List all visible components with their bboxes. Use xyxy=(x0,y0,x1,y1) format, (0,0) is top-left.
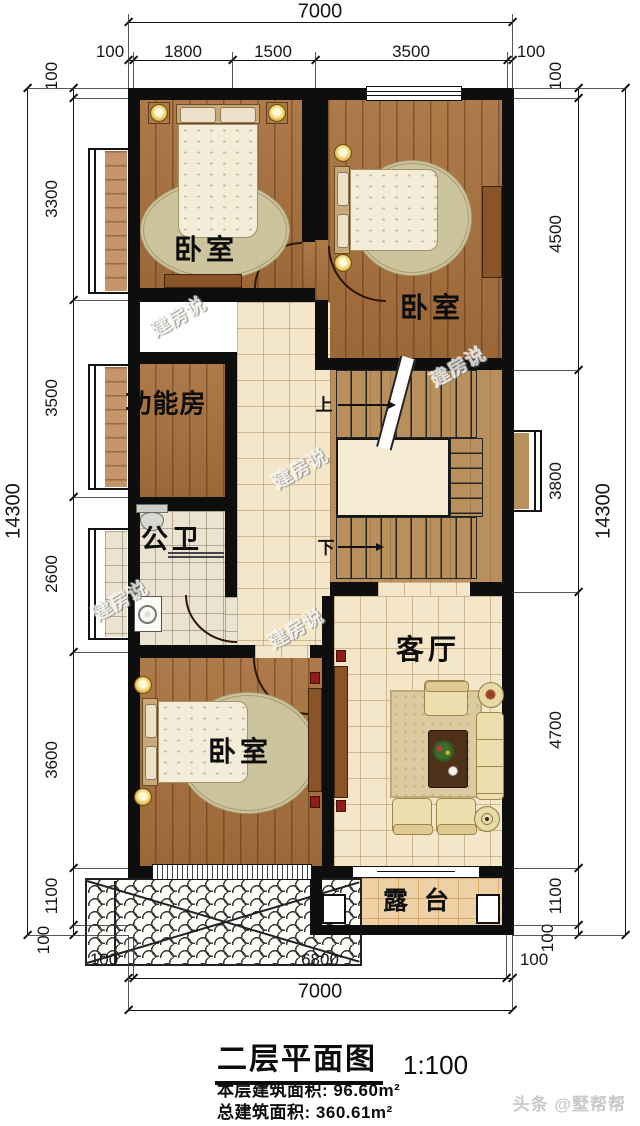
wall-living-left xyxy=(322,596,334,868)
bay-window xyxy=(510,430,542,512)
stair-well xyxy=(336,438,450,517)
dim-line xyxy=(128,978,512,979)
room-label-terrace: 露台 xyxy=(383,881,465,917)
armchair xyxy=(436,798,476,834)
window-glass-line xyxy=(94,150,96,292)
dim-left-seg: 3600 xyxy=(42,741,62,779)
window-top xyxy=(366,86,462,101)
room-label-bedroom-tr: 卧室 xyxy=(400,286,464,326)
dim-top-seg: 3500 xyxy=(392,42,430,62)
extension-line xyxy=(73,300,128,301)
total-area-line: 总建筑面积: 360.61m² xyxy=(217,1098,393,1123)
window-glass-line xyxy=(94,530,96,638)
dim-left-seg: 100 xyxy=(42,62,62,90)
lamp xyxy=(268,104,286,122)
stair-up-arrow-line xyxy=(338,404,390,406)
dim-left-total: 14300 xyxy=(3,483,26,539)
tv-console-bedroom xyxy=(308,688,322,792)
dim-line xyxy=(128,60,512,61)
terrace-pier xyxy=(322,894,346,924)
extension-line xyxy=(128,935,129,1010)
dim-right-seg: 100 xyxy=(538,924,558,952)
extension-line xyxy=(512,925,578,926)
dresser xyxy=(164,274,242,288)
wall-living-top-left xyxy=(330,582,378,596)
dim-line xyxy=(128,22,512,23)
footer-watermark: 头条 @墅帮帮 xyxy=(513,1090,626,1115)
extension-line xyxy=(512,370,578,371)
drawing-scale: 1:100 xyxy=(403,1050,468,1085)
dim-right-total: 14300 xyxy=(593,483,616,539)
bed-pillow xyxy=(220,107,256,123)
wall-bedroom-tl-bottom xyxy=(128,288,315,302)
stair-down-label: 下 xyxy=(318,534,335,559)
extension-line xyxy=(133,52,134,88)
bay-floor xyxy=(513,433,529,509)
armchair-back xyxy=(393,824,433,835)
room-label-bathroom: 公卫 xyxy=(141,518,203,557)
room-label-bedroom-tl: 卧室 xyxy=(174,228,238,268)
extension-line xyxy=(232,52,233,88)
extension-line xyxy=(315,52,316,88)
wall-bedroom-tl-right xyxy=(302,88,315,242)
wall-function-right xyxy=(225,352,237,597)
room-label-living: 客厅 xyxy=(396,628,460,668)
door-opening xyxy=(302,242,315,288)
dim-left-seg: 100 xyxy=(34,926,54,954)
dim-top-seg: 100 xyxy=(517,42,545,62)
dim-right-seg: 4700 xyxy=(546,711,566,749)
tv-console-living xyxy=(334,666,348,798)
bed-top-right xyxy=(334,166,440,254)
extension-line xyxy=(27,935,128,936)
bay-floor xyxy=(105,367,127,487)
sofa xyxy=(476,712,504,800)
bed-pillow xyxy=(145,746,157,780)
armchair-back xyxy=(425,681,469,692)
wall-bedroom-bl-top-left xyxy=(128,645,255,658)
armchair xyxy=(392,798,432,834)
room-label-bedroom-bl: 卧室 xyxy=(208,730,272,770)
extension-line xyxy=(73,98,128,99)
window-glass-line xyxy=(534,432,536,510)
extension-line xyxy=(512,868,578,869)
extension-line xyxy=(512,592,578,593)
armchair-back xyxy=(437,824,477,835)
stair-up-label: 上 xyxy=(316,391,333,416)
floor-plan-canvas: 上 下 xyxy=(0,0,640,1126)
extension-line xyxy=(512,935,625,936)
dim-right-seg: 100 xyxy=(546,62,566,90)
lamp xyxy=(334,254,352,272)
lamp xyxy=(134,676,152,694)
stair-down-arrowhead xyxy=(376,543,384,551)
bed-pillow xyxy=(180,107,216,123)
lamp xyxy=(334,144,352,162)
dim-top-seg: 100 xyxy=(96,42,124,62)
dim-top-total: 7000 xyxy=(298,1,343,24)
dim-line xyxy=(128,1010,512,1011)
bed-pillow xyxy=(145,704,157,738)
dim-bottom-seg: 100 xyxy=(520,950,548,970)
plate xyxy=(448,766,458,776)
bed-top-left xyxy=(176,104,260,240)
extension-line xyxy=(507,52,508,88)
wall-terrace-right xyxy=(502,878,514,935)
dim-top-seg: 1500 xyxy=(254,42,292,62)
wall-bedroom-tr-left xyxy=(315,88,328,240)
bed-pillow xyxy=(337,172,349,206)
bed-duvet xyxy=(178,124,258,238)
dim-line xyxy=(27,88,28,935)
bay-window xyxy=(88,148,130,294)
extension-line xyxy=(73,868,128,869)
wall-living-top-right xyxy=(470,582,512,596)
stair-flight-down xyxy=(336,517,477,579)
extension-line xyxy=(512,935,513,1010)
stair-flight-side xyxy=(450,438,483,517)
dim-line xyxy=(578,88,579,935)
lamp xyxy=(134,788,152,806)
stair-down-arrow-line xyxy=(338,546,378,548)
dim-top-seg: 1800 xyxy=(164,42,202,62)
room-label-function: 功能房 xyxy=(125,384,206,421)
total-area-label: 总建筑面积: xyxy=(217,1103,311,1122)
extension-line xyxy=(506,935,507,978)
sliding-door-terrace xyxy=(352,866,480,878)
extension-line xyxy=(512,88,625,89)
dim-bottom-seg: 100 xyxy=(90,950,118,970)
extension-line xyxy=(133,935,134,978)
dim-left-seg: 3500 xyxy=(42,379,62,417)
lamp xyxy=(150,104,168,122)
dim-left-seg: 3300 xyxy=(42,180,62,218)
bed-pillow xyxy=(337,214,349,248)
speaker xyxy=(336,800,346,812)
terrace-pier xyxy=(476,894,500,924)
extension-line xyxy=(512,98,578,99)
door-opening xyxy=(315,240,328,300)
flower-vase xyxy=(432,740,455,762)
extension-line xyxy=(73,652,128,653)
extension-line xyxy=(73,925,128,926)
dim-line xyxy=(625,88,626,935)
washer-drum xyxy=(138,605,157,624)
dim-left-seg: 2600 xyxy=(42,555,62,593)
bay-window xyxy=(88,364,130,490)
bay-floor xyxy=(105,151,127,291)
window-bedroom-bl xyxy=(152,864,312,880)
dim-bottom-seg: 6800 xyxy=(301,950,339,970)
dim-right-seg: 4500 xyxy=(546,215,566,253)
wall-exterior-left xyxy=(128,88,140,878)
speaker xyxy=(336,650,346,662)
wall-opening xyxy=(378,582,470,596)
extension-line xyxy=(73,497,128,498)
dim-right-seg: 1100 xyxy=(546,878,566,915)
speaker xyxy=(310,796,320,808)
extension-line xyxy=(128,14,129,88)
dim-bottom-total: 7000 xyxy=(298,981,343,1004)
window-glass-line xyxy=(94,366,96,488)
dim-line xyxy=(73,88,74,935)
armchair xyxy=(424,680,468,716)
total-area-value: 360.61m² xyxy=(316,1103,393,1122)
wall-terrace-bottom xyxy=(310,925,512,935)
wardrobe xyxy=(482,186,502,278)
side-table-plant xyxy=(478,682,504,708)
dim-right-seg: 3800 xyxy=(546,462,566,500)
dim-left-seg: 1100 xyxy=(42,878,62,915)
bed-duvet xyxy=(350,169,438,251)
side-table xyxy=(474,806,500,832)
extension-line xyxy=(512,14,513,88)
speaker xyxy=(310,672,320,684)
extension-line xyxy=(27,88,128,89)
stair-up-arrowhead xyxy=(388,401,396,409)
wall-function-top xyxy=(128,352,237,364)
